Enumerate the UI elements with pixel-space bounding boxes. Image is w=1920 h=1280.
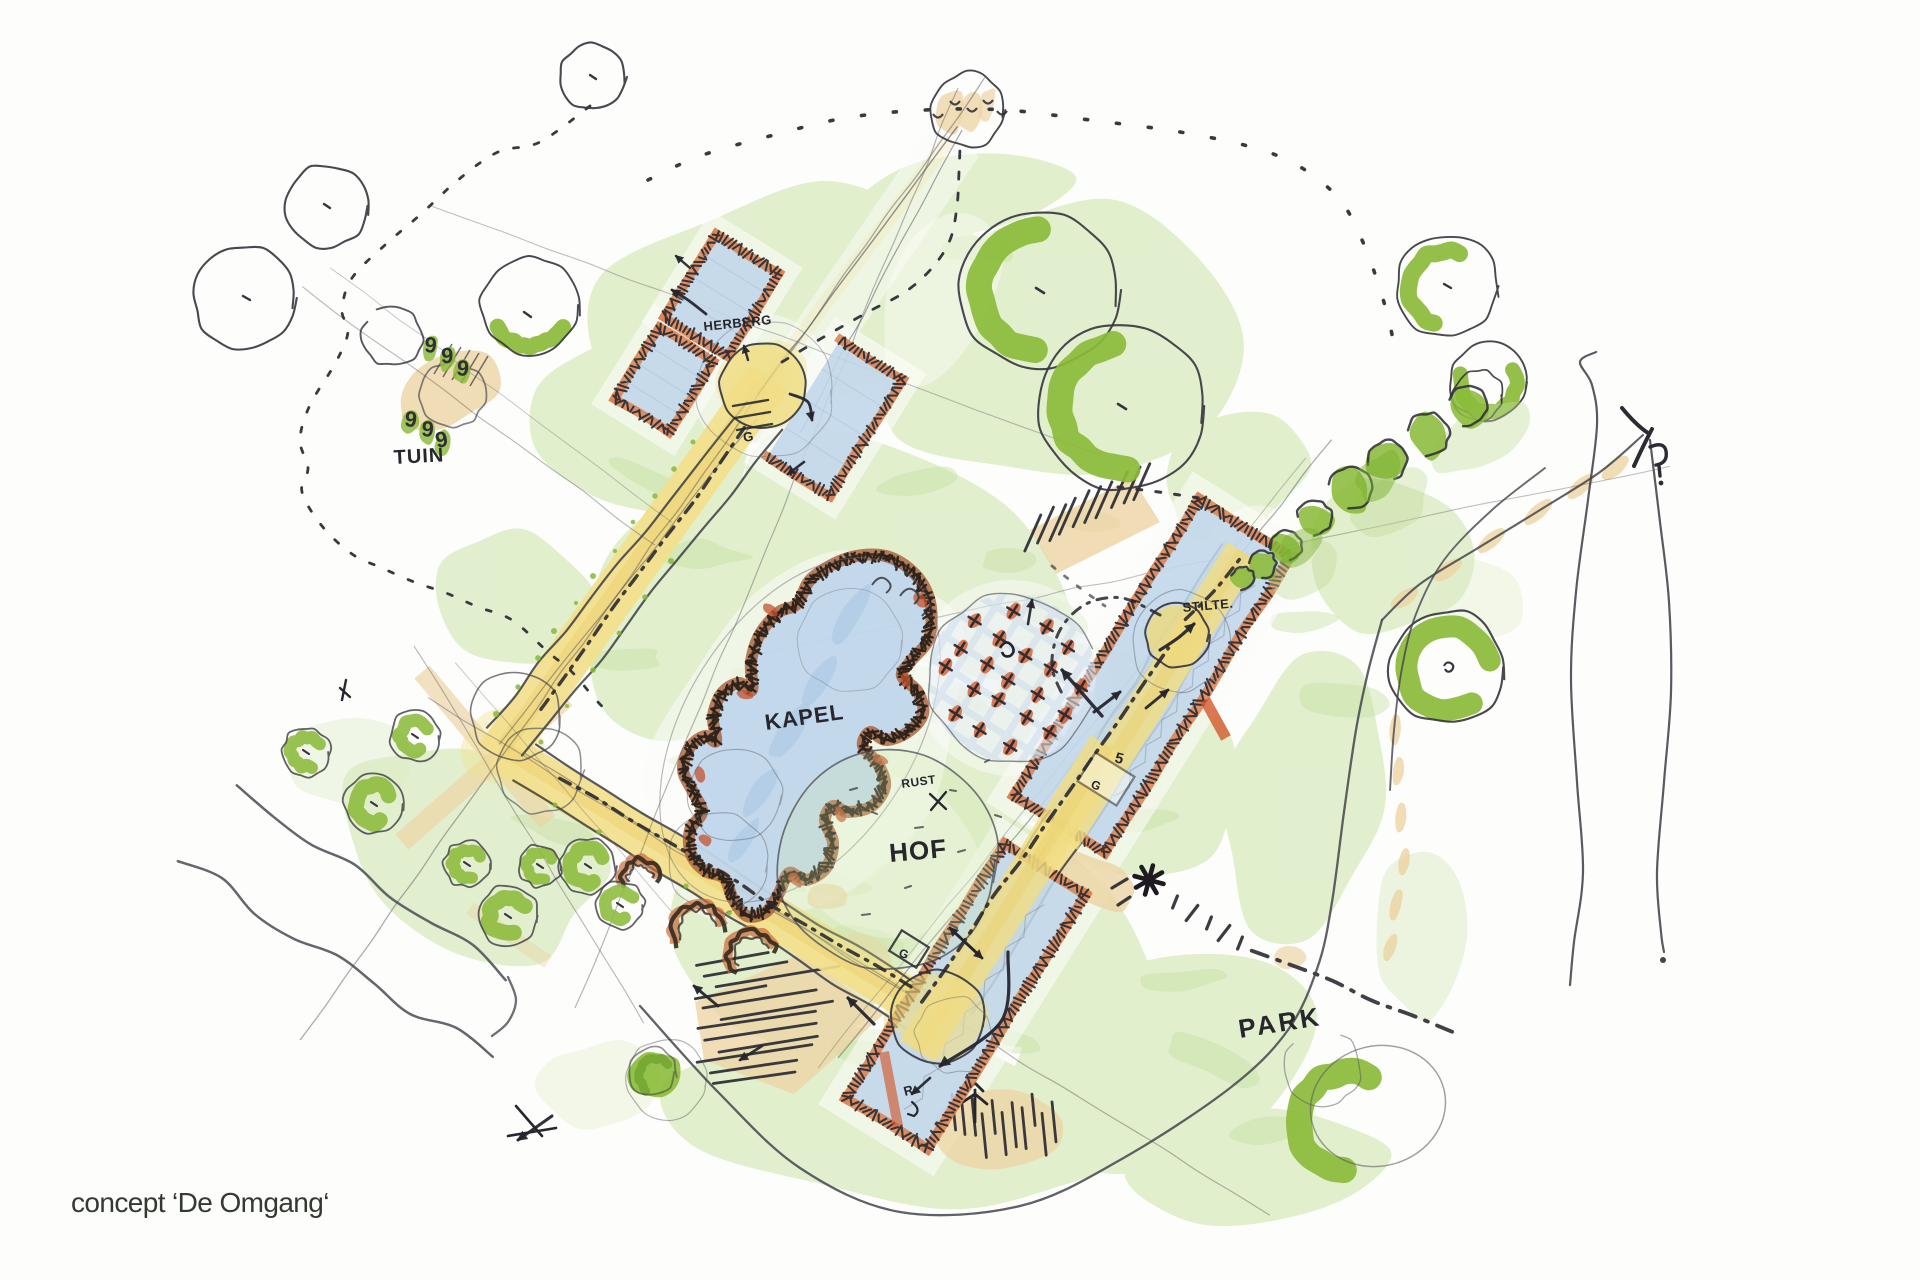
svg-text:9: 9: [456, 355, 471, 381]
svg-text:9: 9: [424, 332, 438, 358]
svg-text:9: 9: [441, 343, 453, 368]
svg-text:HOF: HOF: [888, 833, 948, 868]
svg-text:TUIN: TUIN: [393, 444, 445, 469]
svg-text:9: 9: [403, 406, 418, 432]
svg-text:concept ‘De Omgang‘: concept ‘De Omgang‘: [71, 1187, 329, 1218]
